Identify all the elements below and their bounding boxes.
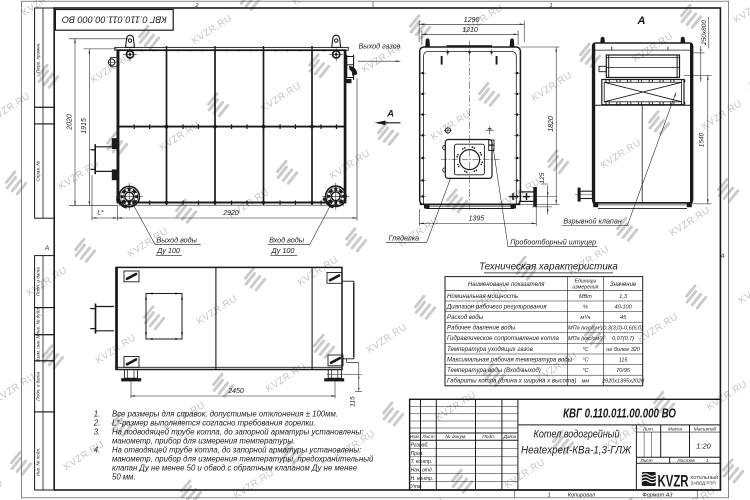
svg-text:Выход воды: Выход воды: [157, 235, 198, 244]
svg-text:2: 2: [194, 3, 198, 9]
svg-text:Н. контр.: Н. контр.: [411, 476, 434, 482]
svg-text:0,07(0,7): 0,07(0,7): [612, 336, 634, 342]
svg-text:Взрывной клапан: Взрывной клапан: [563, 216, 621, 225]
svg-text:Ду 100: Ду 100: [156, 246, 180, 255]
svg-text:Утв.: Утв.: [411, 484, 422, 490]
svg-text:Максимальная рабочая температу: Максимальная рабочая температура воды: [447, 356, 573, 363]
svg-text:Нач. отд.: Нач. отд.: [411, 468, 433, 474]
svg-text:измерения: измерения: [572, 285, 598, 291]
svg-text:Наименование показателя: Наименование показателя: [468, 282, 545, 288]
svg-text:Вход воды: Вход воды: [269, 235, 305, 244]
svg-text:МПа (кгс/см²): МПа (кгс/см²): [568, 326, 603, 332]
svg-text:0,3(3,0)-0,6(6,0): 0,3(3,0)-0,6(6,0): [603, 326, 643, 332]
svg-text:Листов: Листов: [676, 458, 695, 464]
svg-text:Инв. № подл.: Инв. № подл.: [36, 448, 41, 477]
svg-text:1: 1: [549, 3, 552, 9]
svg-text:На подводящей трубе котла, до: На подводящей трубе котла, до запорной а…: [112, 427, 363, 436]
svg-text:А: А: [637, 15, 646, 27]
svg-text:115: 115: [349, 396, 356, 407]
svg-text:1540: 1540: [698, 132, 705, 147]
svg-text:ЗАВОД РЭП: ЗАВОД РЭП: [691, 481, 716, 486]
svg-text:Рабочее давление воды: Рабочее давление воды: [447, 325, 516, 332]
svg-text:Расход воды: Расход воды: [447, 314, 484, 321]
svg-text:2020: 2020: [67, 114, 74, 131]
svg-text:Изм.: Изм.: [410, 434, 420, 440]
svg-text:Копировал: Копировал: [568, 493, 595, 499]
svg-text:2920х1395х2020: 2920х1395х2020: [601, 379, 645, 385]
svg-text:Лист: Лист: [639, 458, 652, 464]
svg-text:м³/ч: м³/ч: [580, 315, 590, 321]
svg-text:Масштаб: Масштаб: [694, 427, 717, 433]
svg-text:Диапазон рабочего регулировани: Диапазон рабочего регулирования: [446, 303, 547, 310]
svg-text:Дата: Дата: [503, 434, 517, 440]
svg-text:Масса: Масса: [668, 427, 683, 433]
svg-text:2920: 2920: [222, 210, 239, 217]
svg-text:Гидравлическое сопротивление к: Гидравлическое сопротивление котла: [447, 335, 560, 342]
svg-text:МВт: МВт: [579, 294, 592, 300]
svg-text:50 мм.: 50 мм.: [112, 472, 136, 481]
svg-text:манометр, прибор для измерения: манометр, прибор для измерения температу…: [112, 436, 295, 445]
svg-text:°С: °С: [582, 357, 588, 363]
svg-text:Т. контр.: Т. контр.: [411, 459, 433, 465]
svg-text:Номинальная мощность: Номинальная мощность: [447, 293, 518, 300]
svg-text:Разраб.: Разраб.: [411, 443, 429, 449]
svg-text:Температура воды (Вход/выход): Температура воды (Вход/выход): [447, 367, 541, 374]
svg-text:45: 45: [620, 315, 627, 321]
svg-text:2.: 2.: [93, 418, 101, 427]
svg-text:70/95: 70/95: [616, 368, 631, 374]
svg-text:Все размеры для справок, допус: Все размеры для справок, допустимые откл…: [112, 409, 338, 418]
svg-text:1290: 1290: [464, 17, 480, 24]
svg-text:Лит.: Лит.: [642, 427, 654, 433]
svg-text:А: А: [719, 253, 724, 260]
svg-text:2450: 2450: [227, 388, 244, 395]
svg-text:не более 320: не более 320: [606, 347, 641, 353]
svg-text:манометр, прибор для измерения: манометр, прибор для измерения температу…: [112, 454, 374, 463]
svg-text:Лист: Лист: [421, 434, 434, 440]
svg-text:1:20: 1:20: [696, 442, 711, 451]
svg-text:1820: 1820: [548, 116, 555, 132]
svg-text:°С: °С: [582, 347, 588, 353]
svg-text:1,3: 1,3: [619, 294, 628, 300]
svg-text:КОТЕЛЬНЫЙ: КОТЕЛЬНЫЙ: [691, 475, 719, 480]
svg-text:3.: 3.: [94, 427, 101, 436]
svg-text:А: А: [44, 245, 49, 252]
svg-text:%: %: [583, 304, 588, 310]
svg-text:Котел водогрейный: Котел водогрейный: [534, 429, 620, 441]
svg-text:1: 1: [548, 493, 551, 499]
svg-text:Инв. № дубл.: Инв. № дубл.: [36, 307, 41, 335]
svg-text:Пробоотборный штуцер: Пробоотборный штуцер: [510, 238, 596, 247]
svg-text:А: А: [386, 109, 394, 120]
svg-text:Температура уходящих газов: Температура уходящих газов: [447, 346, 533, 353]
svg-text:Гляделка: Гляделка: [389, 233, 420, 242]
svg-text:Ду 100: Ду 100: [271, 246, 295, 255]
svg-text:Выход газов: Выход газов: [359, 41, 401, 50]
svg-text:1.: 1.: [94, 409, 101, 418]
svg-text:1: 1: [706, 458, 709, 464]
svg-text:Справ. №: Справ. №: [36, 161, 41, 182]
svg-text:Пров.: Пров.: [411, 451, 424, 457]
svg-text:°С: °С: [582, 368, 588, 374]
svg-text:KVZR: KVZR: [658, 471, 689, 490]
svg-text:1395: 1395: [469, 216, 485, 223]
svg-text:Перв. примен.: Перв. примен.: [36, 42, 41, 73]
svg-text:40-100: 40-100: [615, 304, 633, 310]
svg-text:Heatexpert-КВа-1,3-ГЛЖ: Heatexpert-КВа-1,3-ГЛЖ: [521, 445, 632, 457]
svg-text:250х800: 250х800: [701, 20, 708, 46]
svg-text:КВГ 0.110.011.00.000 ВО: КВГ 0.110.011.00.000 ВО: [62, 15, 167, 25]
svg-text:Подп. и дата: Подп. и дата: [36, 372, 41, 401]
svg-text:Техническая характеристика: Техническая характеристика: [479, 262, 618, 273]
svg-text:КВГ 0.110.011.00.000 ВО: КВГ 0.110.011.00.000 ВО: [563, 406, 676, 421]
svg-text:4.: 4.: [94, 445, 101, 454]
svg-text:L*-размер выполняется согласно: L*-размер выполняется согласно требовани…: [112, 418, 316, 427]
svg-text:Взам. инв. №: Взам. инв. №: [36, 334, 41, 362]
svg-text:На отводящей трубе котла, до з: На отводящей трубе котла, до запорной ар…: [112, 445, 361, 454]
svg-text:1915: 1915: [81, 118, 88, 134]
svg-text:125: 125: [539, 172, 546, 183]
svg-text:Габариты котла (длина х ширина: Габариты котла (длина х ширина х высота): [447, 378, 576, 385]
svg-text:115: 115: [619, 357, 629, 363]
svg-text:Формат А3: Формат А3: [642, 493, 673, 499]
svg-text:мм: мм: [582, 379, 590, 385]
svg-text:1210: 1210: [462, 27, 478, 34]
svg-text:№ докум.: № докум.: [445, 434, 466, 440]
svg-text:L*: L*: [97, 210, 104, 217]
svg-text:клапан Ду не менее 50 и обвод: клапан Ду не менее 50 и обвод с обратным…: [112, 463, 358, 472]
svg-text:Подп.: Подп.: [482, 434, 495, 440]
svg-text:МПа (кгс/см²): МПа (кгс/см²): [568, 336, 603, 342]
svg-text:Значение: Значение: [610, 282, 637, 288]
svg-text:Подп. и дата: Подп. и дата: [36, 267, 41, 296]
